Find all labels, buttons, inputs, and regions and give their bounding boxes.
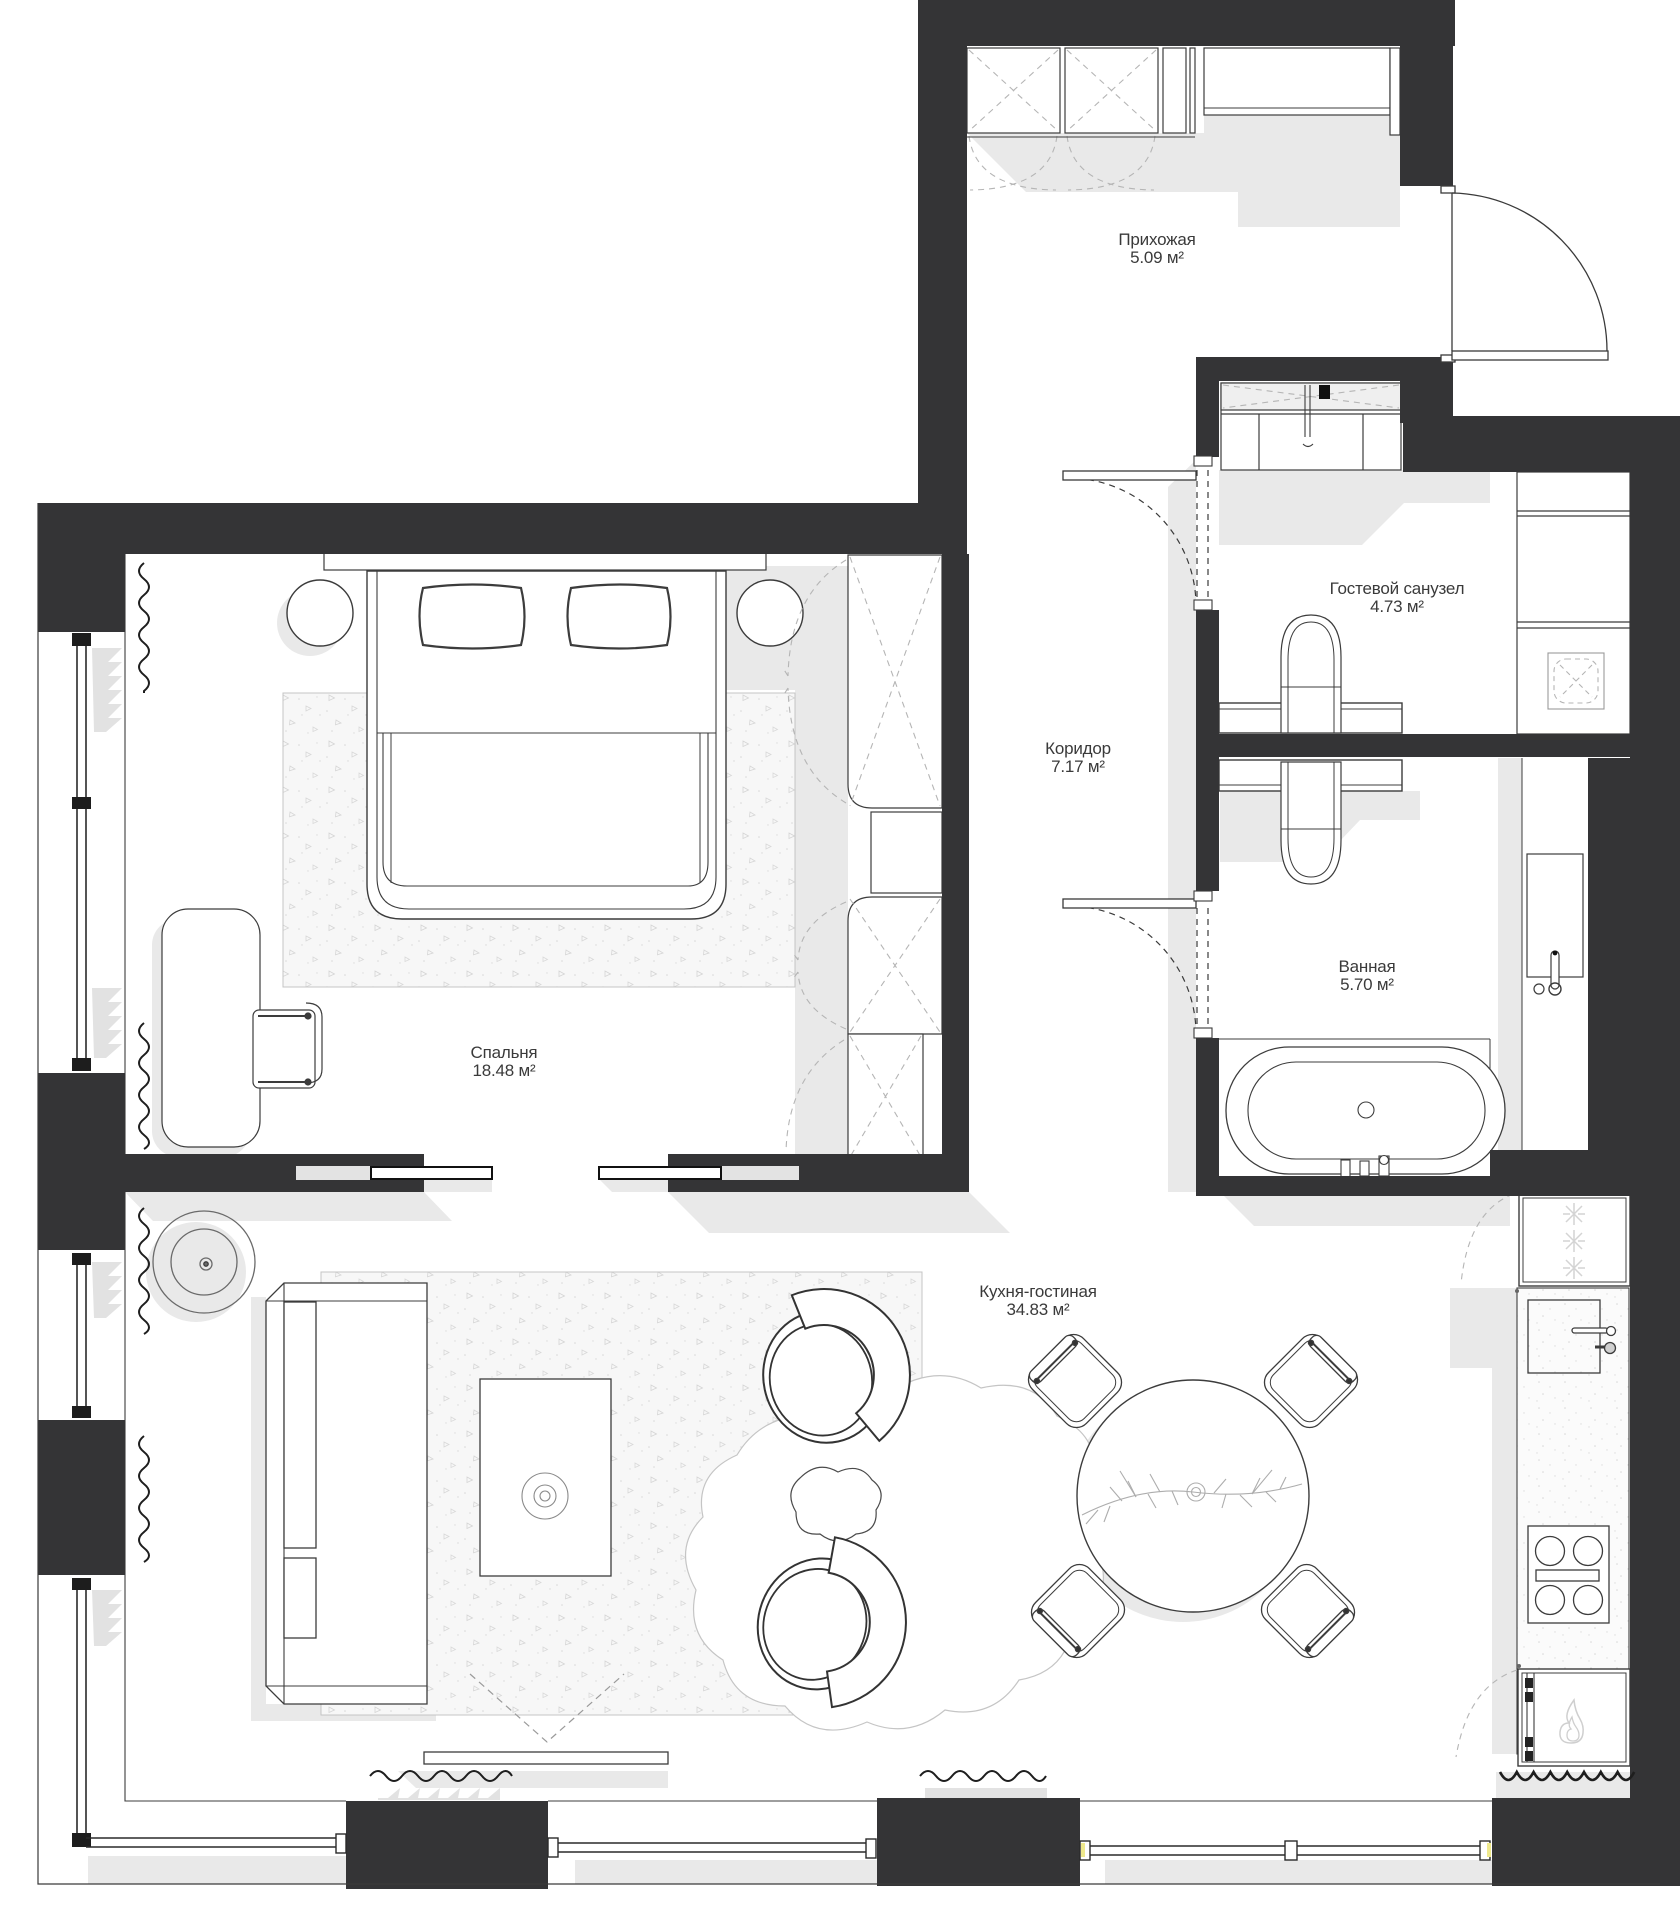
svg-text:34.83 м²: 34.83 м² xyxy=(1006,1300,1070,1319)
svg-text:Прихожая: Прихожая xyxy=(1118,230,1195,249)
svg-text:4.73 м²: 4.73 м² xyxy=(1370,597,1424,616)
svg-text:Ванная: Ванная xyxy=(1338,957,1395,976)
svg-text:5.70 м²: 5.70 м² xyxy=(1340,975,1394,994)
svg-text:Спальня: Спальня xyxy=(471,1043,538,1062)
svg-text:7.17 м²: 7.17 м² xyxy=(1051,757,1105,776)
svg-text:5.09 м²: 5.09 м² xyxy=(1130,248,1184,267)
svg-text:Гостевой санузел: Гостевой санузел xyxy=(1330,579,1465,598)
svg-text:Кухня-гостиная: Кухня-гостиная xyxy=(979,1282,1096,1301)
svg-text:18.48 м²: 18.48 м² xyxy=(472,1061,536,1080)
svg-text:Коридор: Коридор xyxy=(1045,739,1111,758)
